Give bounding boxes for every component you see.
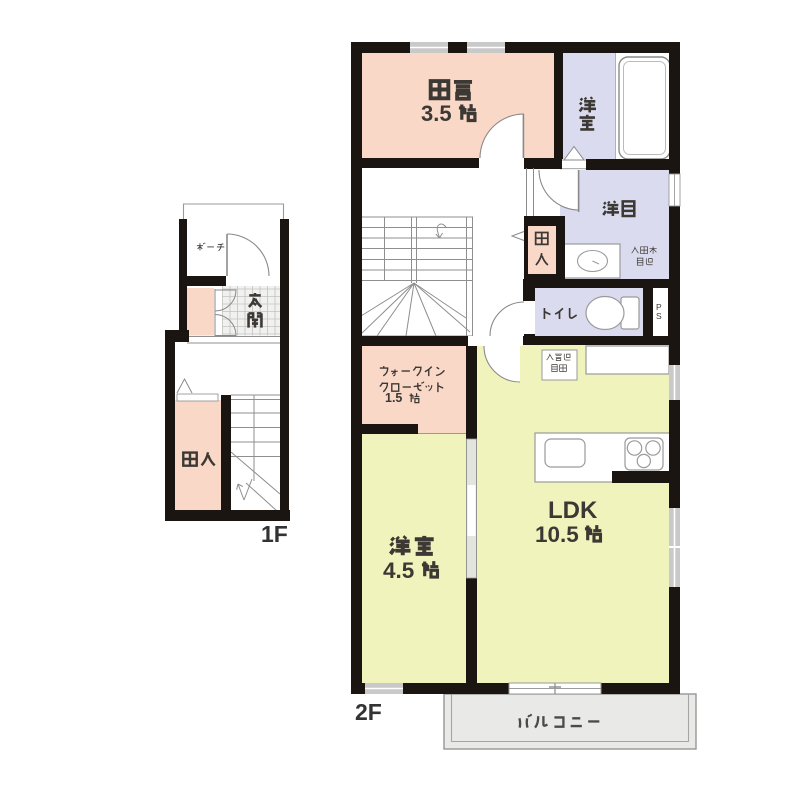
svg-text:4.5: 4.5 [383, 558, 414, 583]
svg-text:10.5: 10.5 [535, 522, 579, 547]
svg-text:1F: 1F [261, 521, 288, 547]
svg-text:1.5: 1.5 [385, 391, 402, 405]
svg-text:S: S [656, 311, 662, 321]
svg-text:3.5: 3.5 [421, 101, 452, 126]
svg-text:LDK: LDK [548, 497, 598, 524]
svg-text:2F: 2F [355, 699, 382, 725]
